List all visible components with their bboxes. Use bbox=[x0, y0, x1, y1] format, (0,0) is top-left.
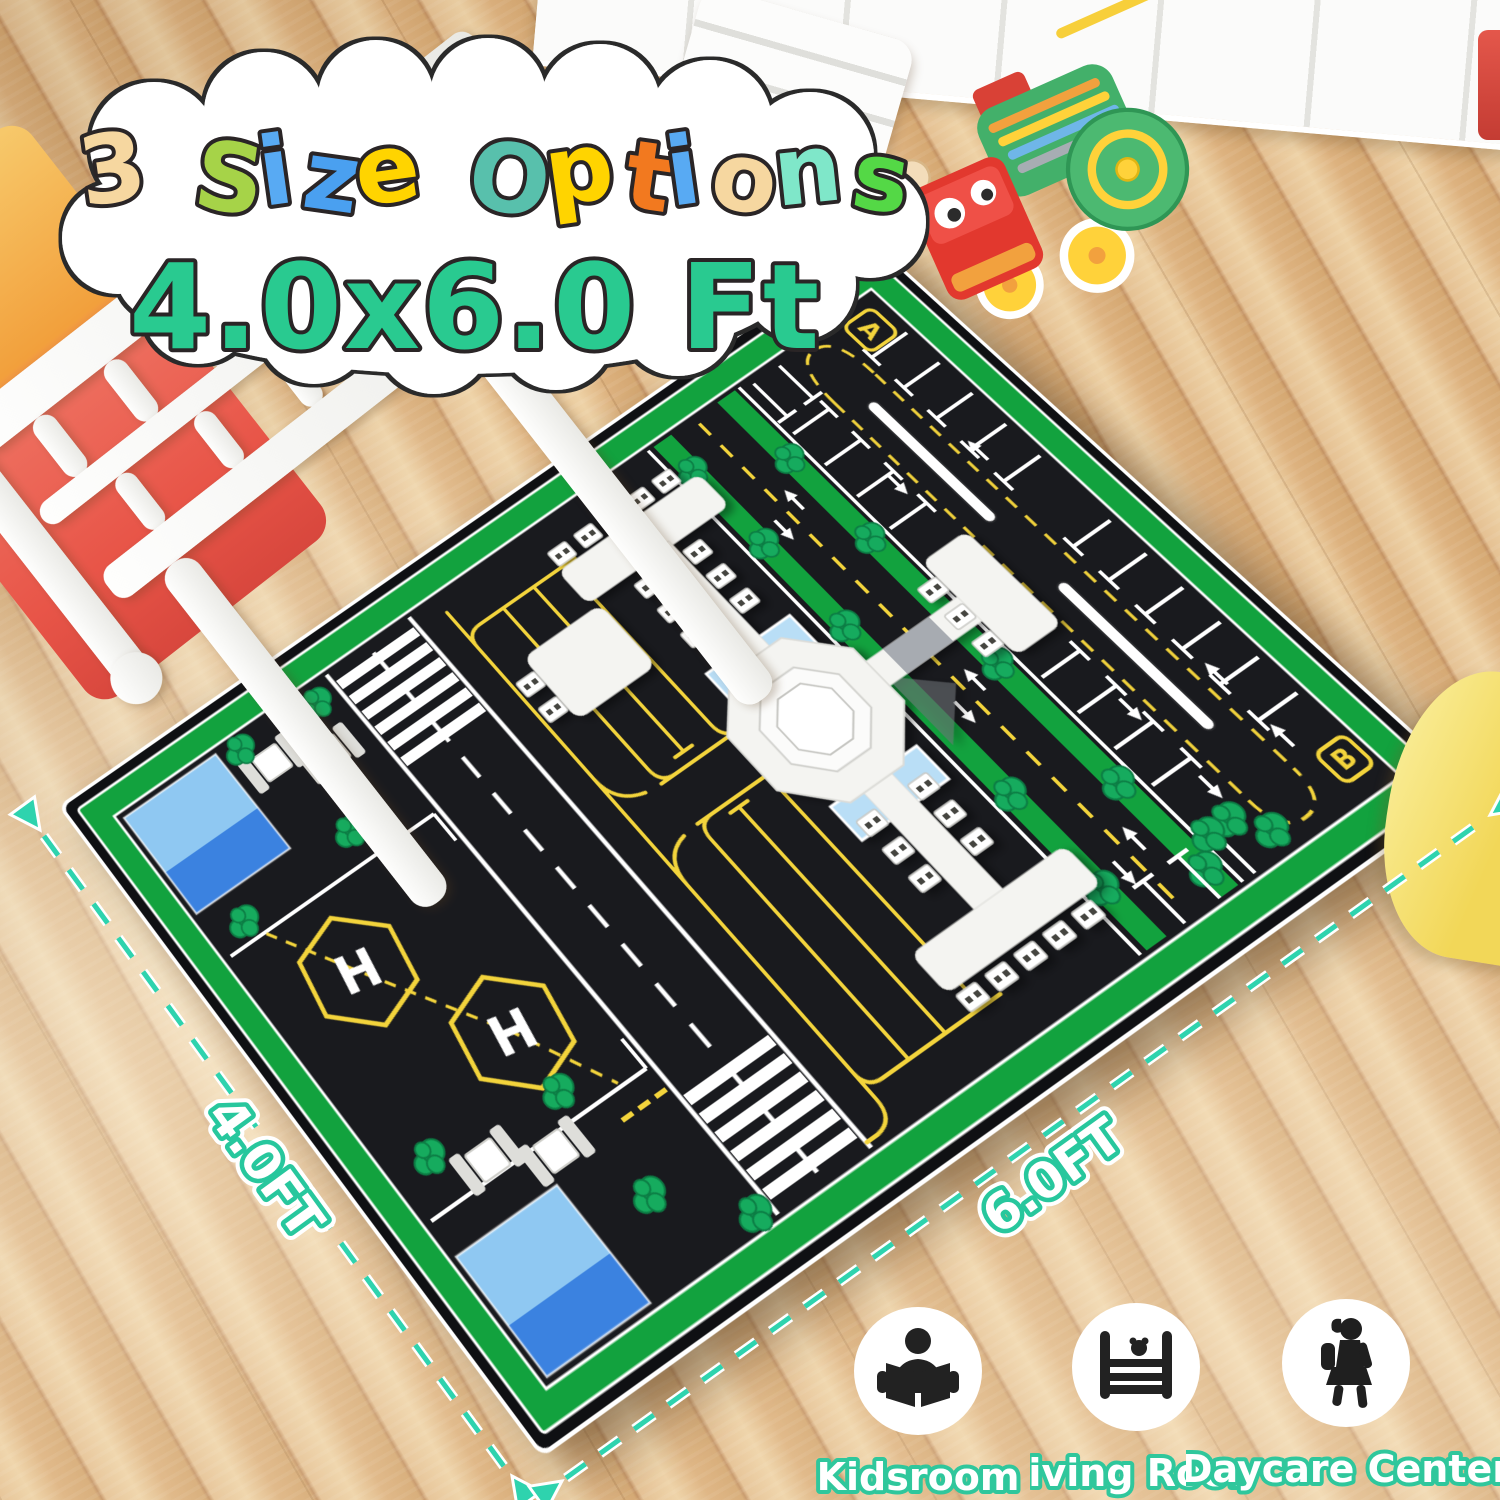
badge-label: Daycare Center bbox=[1186, 1447, 1500, 1491]
badge-daycare: Daycare Center bbox=[1186, 1288, 1500, 1500]
badge-kidsroom: Kidsroom bbox=[812, 1296, 1024, 1500]
badge-label: Kidsroom bbox=[817, 1455, 1020, 1499]
red-toy-edge bbox=[1478, 30, 1500, 140]
title-block: 3 Size Options 4.0x6.0 Ft bbox=[14, 26, 954, 406]
title-line2: 4.0x6.0 Ft bbox=[129, 238, 821, 376]
product-image-scene: H H bbox=[0, 0, 1500, 1500]
